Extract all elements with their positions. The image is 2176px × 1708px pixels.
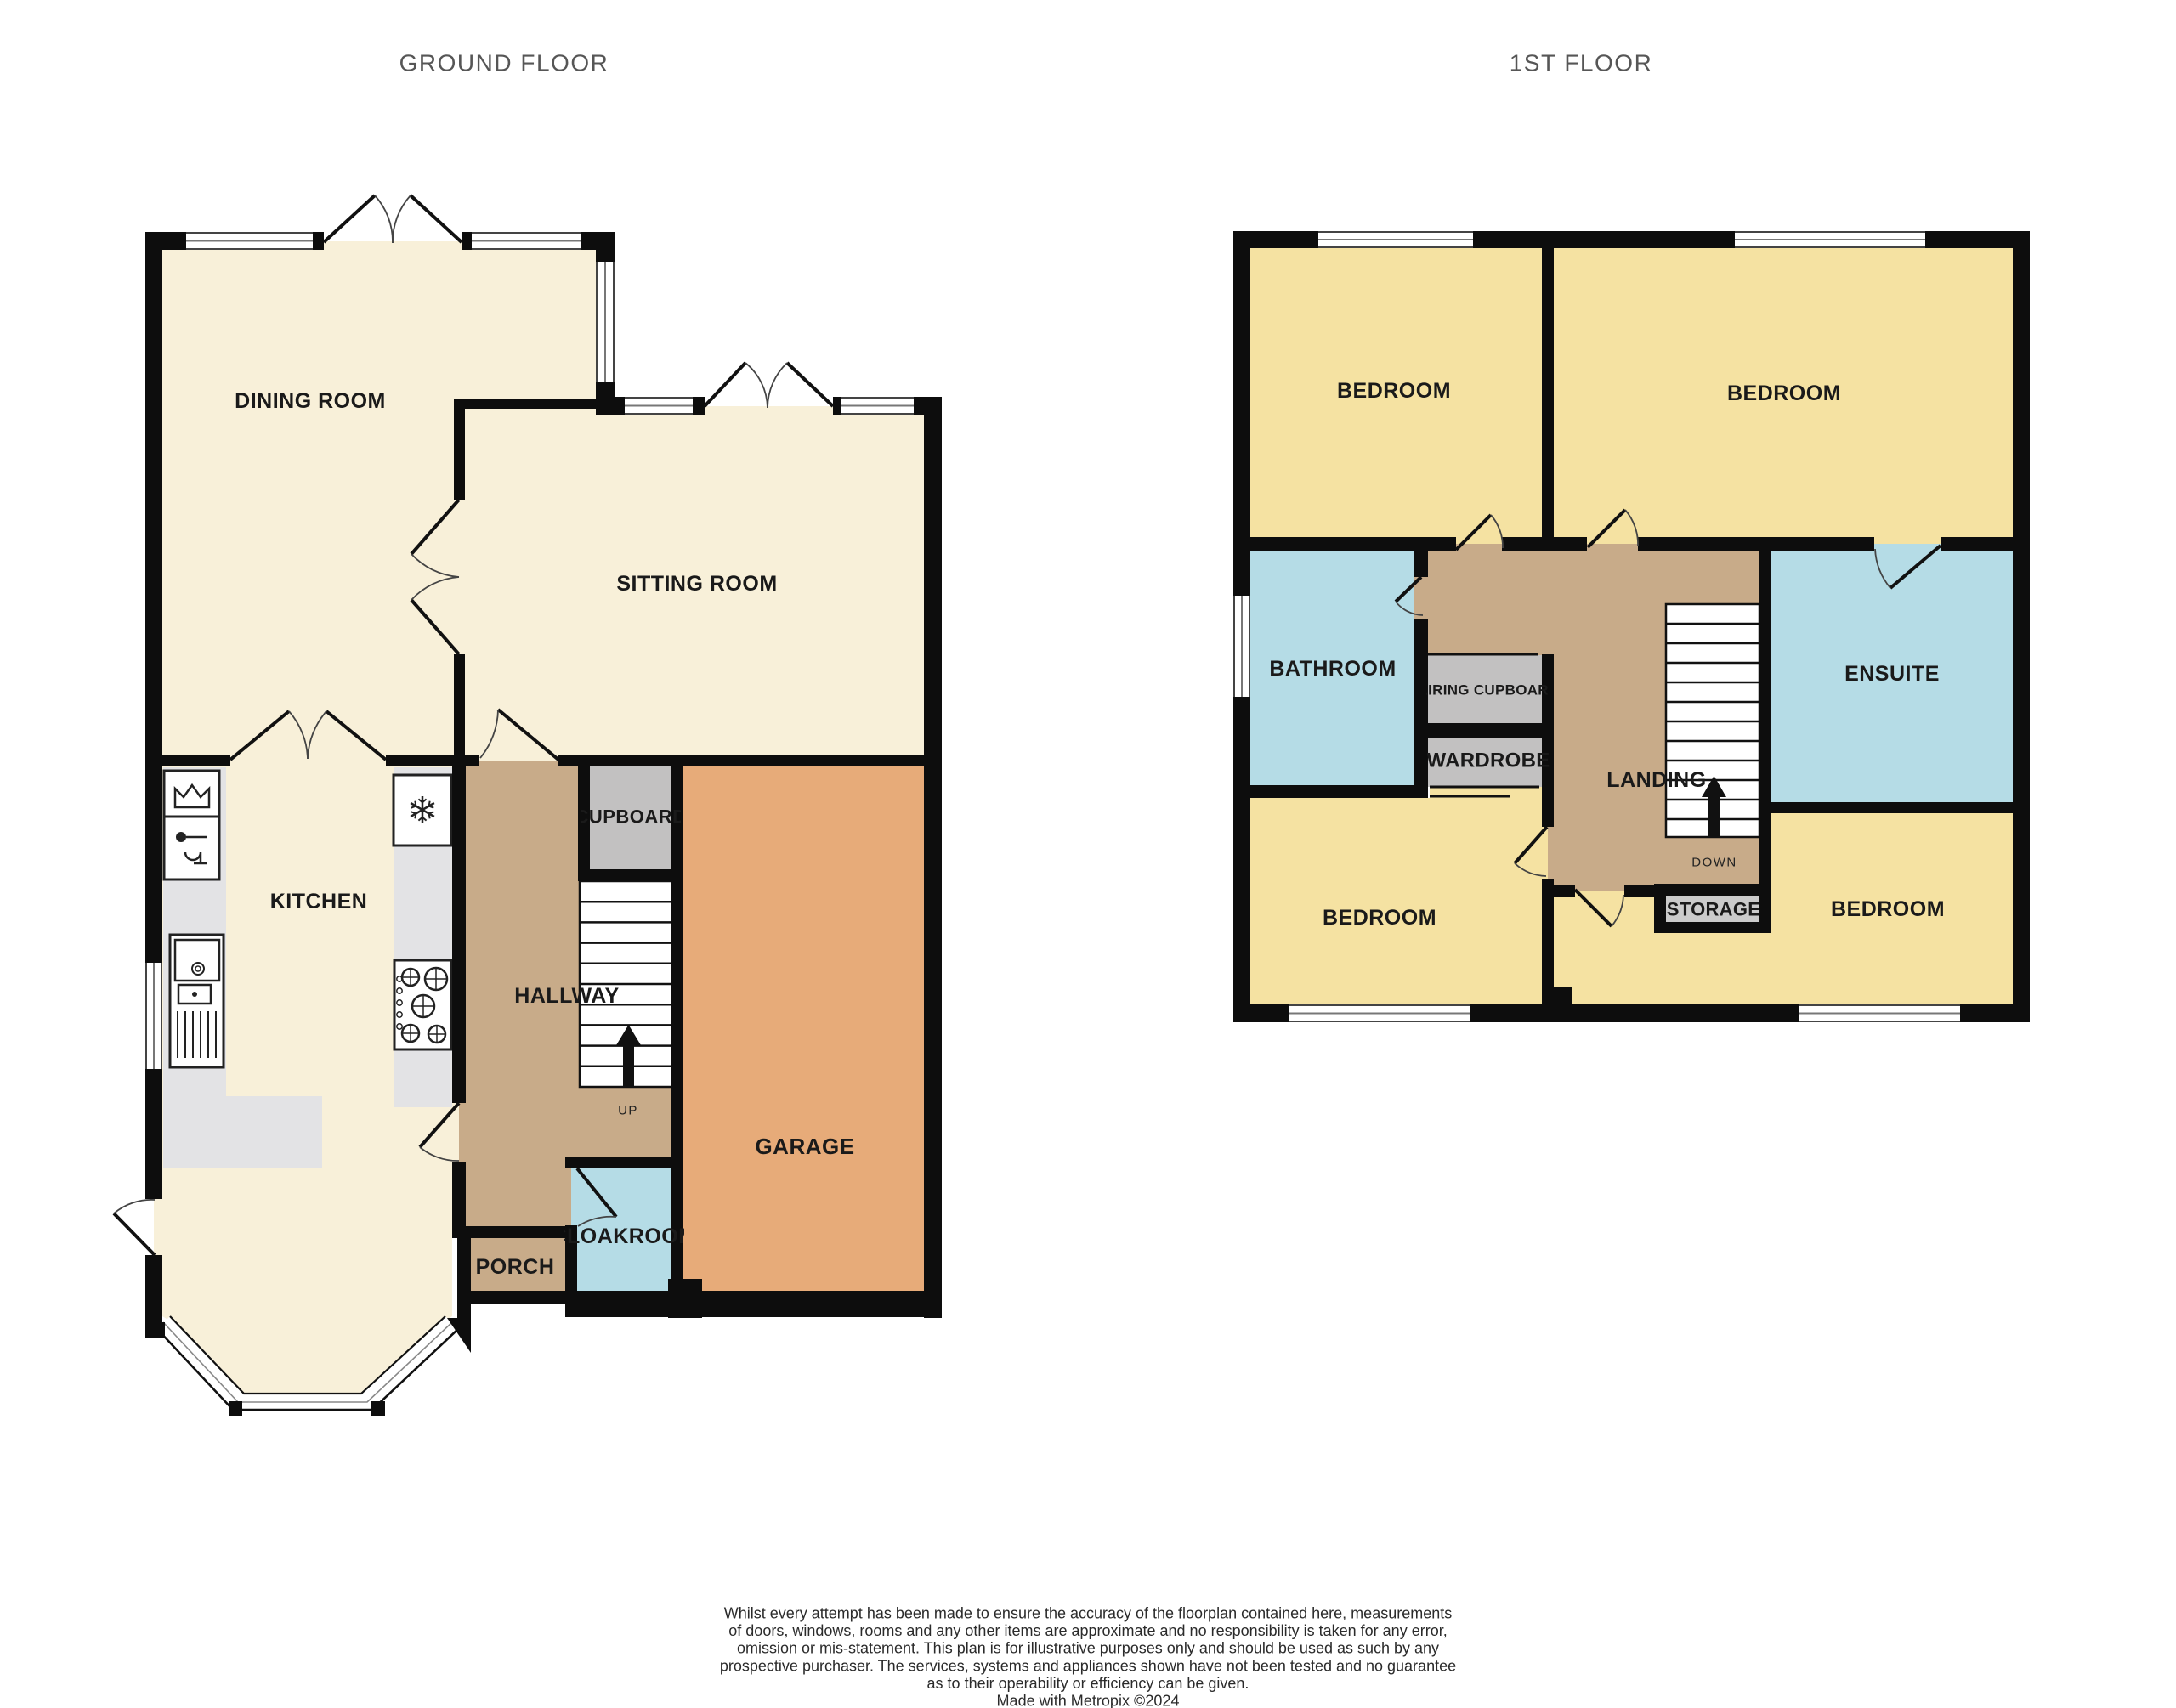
svg-text:ENSUITE: ENSUITE <box>1844 662 1940 686</box>
svg-text:SITTING ROOM: SITTING ROOM <box>616 572 777 596</box>
svg-text:CLOAKROOM: CLOAKROOM <box>551 1224 696 1248</box>
svg-text:1ST FLOOR: 1ST FLOOR <box>1510 50 1653 76</box>
svg-text:HALLWAY: HALLWAY <box>514 984 619 1008</box>
svg-text:as to their operability or eff: as to their operability or efficiency ca… <box>927 1675 1249 1692</box>
svg-text:GROUND FLOOR: GROUND FLOOR <box>399 50 609 76</box>
svg-text:of doors, windows, rooms and a: of doors, windows, rooms and any other i… <box>728 1622 1447 1639</box>
svg-text:AIRING CUPBOARD: AIRING CUPBOARD <box>1418 682 1560 698</box>
svg-text:UP: UP <box>618 1104 638 1118</box>
svg-text:LANDING: LANDING <box>1606 768 1706 792</box>
svg-text:Made with Metropix ©2024: Made with Metropix ©2024 <box>997 1693 1180 1708</box>
svg-text:BEDROOM: BEDROOM <box>1831 897 1945 921</box>
svg-text:DINING ROOM: DINING ROOM <box>235 389 386 413</box>
svg-text:BEDROOM: BEDROOM <box>1727 382 1841 405</box>
svg-text:PORCH: PORCH <box>476 1255 555 1279</box>
svg-text:WARDROBE: WARDROBE <box>1426 749 1550 772</box>
svg-text:STORAGE: STORAGE <box>1667 899 1761 920</box>
svg-text:BEDROOM: BEDROOM <box>1337 379 1451 403</box>
svg-text:prospective purchaser. The ser: prospective purchaser. The services, sys… <box>720 1657 1456 1674</box>
svg-text:DOWN: DOWN <box>1691 856 1737 870</box>
svg-text:Whilst every attempt has been: Whilst every attempt has been made to en… <box>724 1605 1452 1622</box>
svg-text:BEDROOM: BEDROOM <box>1323 906 1436 930</box>
svg-text:omission or mis-statement. Thi: omission or mis-statement. This plan is … <box>737 1640 1439 1657</box>
svg-text:KITCHEN: KITCHEN <box>270 890 368 913</box>
svg-text:CUPBOARD: CUPBOARD <box>575 806 686 828</box>
svg-text:GARAGE: GARAGE <box>755 1134 854 1159</box>
svg-text:BATHROOM: BATHROOM <box>1269 657 1396 681</box>
